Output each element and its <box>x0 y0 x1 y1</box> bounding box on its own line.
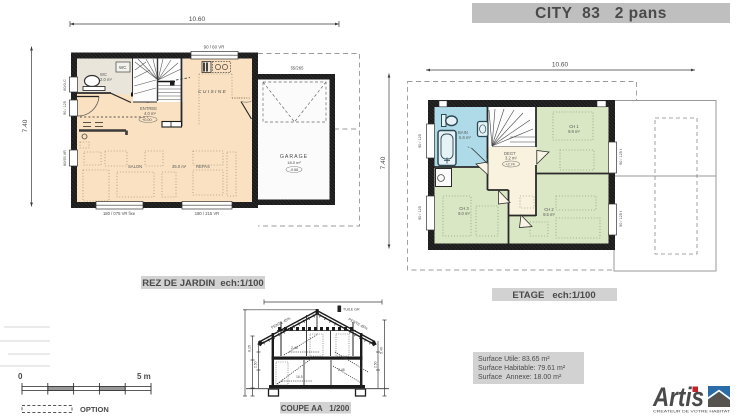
svg-text:2.50: 2.50 <box>374 361 378 368</box>
svg-text:35.0 m²: 35.0 m² <box>172 164 187 169</box>
svg-text:+0.00: +0.00 <box>142 118 152 122</box>
svg-text:7.40: 7.40 <box>22 119 29 132</box>
svg-text:9.9 m²: 9.9 m² <box>568 129 580 134</box>
svg-text:5.6 m²: 5.6 m² <box>459 135 471 140</box>
svg-text:90 / 125: 90 / 125 <box>418 206 422 220</box>
svg-text:9.0 m²: 9.0 m² <box>458 211 470 216</box>
svg-text:2.0 m²: 2.0 m² <box>100 77 112 82</box>
svg-text:18.0 m²: 18.0 m² <box>287 160 301 165</box>
svg-text:2.50: 2.50 <box>254 361 258 368</box>
svg-text:OPTION: OPTION <box>80 405 109 414</box>
svg-text:6.15: 6.15 <box>248 345 252 352</box>
svg-text:Surface Annexe: 18.00 m²: Surface Annexe: 18.00 m² <box>478 374 562 381</box>
svg-text:3.2 m²: 3.2 m² <box>505 156 517 161</box>
svg-text:10.60: 10.60 <box>552 62 569 69</box>
svg-text:16.5: 16.5 <box>296 375 303 379</box>
svg-text:ETAGE ech:1/100: ETAGE ech:1/100 <box>512 290 595 301</box>
svg-text:2.48: 2.48 <box>338 368 345 372</box>
svg-text:7.40: 7.40 <box>380 156 387 169</box>
svg-text:CUISINE: CUISINE <box>198 89 227 95</box>
svg-text:90 / 125 t: 90 / 125 t <box>619 148 623 165</box>
svg-text:10.60: 10.60 <box>189 16 206 23</box>
svg-text:0: 0 <box>18 372 23 381</box>
svg-text:90 / 125: 90 / 125 <box>63 101 67 115</box>
svg-text:90 / 125: 90 / 125 <box>418 134 422 148</box>
svg-text:SALON: SALON <box>128 164 142 169</box>
svg-text:TUILE GR: TUILE GR <box>343 308 360 312</box>
svg-text:60/0-C: 60/0-C <box>63 79 67 91</box>
svg-text:REPAS: REPAS <box>196 164 210 169</box>
svg-text:90 / 60 VR: 90 / 60 VR <box>204 45 225 50</box>
svg-text:COUPE AA 1/200: COUPE AA 1/200 <box>281 404 350 413</box>
svg-text:2.48: 2.48 <box>291 346 298 350</box>
svg-text:80/95 VR: 80/95 VR <box>63 150 67 166</box>
svg-text:180 / 075 VR fixe: 180 / 075 VR fixe <box>103 211 136 216</box>
svg-text:Surface Habitable: 79.61 m²: Surface Habitable: 79.61 m² <box>478 365 566 372</box>
svg-text:CREATEUR DE VOTRE HABITAT: CREATEUR DE VOTRE HABITAT <box>653 409 731 414</box>
svg-text:55/265: 55/265 <box>291 66 304 71</box>
svg-text:5 m: 5 m <box>137 372 151 381</box>
svg-text:Surface Utile: 83.65 m²: Surface Utile: 83.65 m² <box>478 356 550 363</box>
svg-text:+2.74: +2.74 <box>506 163 515 167</box>
svg-text:WC: WC <box>119 65 127 70</box>
svg-text:180 / 215 VR: 180 / 215 VR <box>195 211 219 216</box>
svg-text:9.5 m²: 9.5 m² <box>543 212 555 217</box>
svg-text:5.40: 5.40 <box>380 347 384 354</box>
svg-text:90 / 125 t: 90 / 125 t <box>619 210 623 227</box>
svg-text:4.0 m²: 4.0 m² <box>144 111 156 116</box>
svg-text:CITY 83 2 pans: CITY 83 2 pans <box>535 5 667 22</box>
svg-text:-0.68: -0.68 <box>290 168 298 172</box>
svg-text:REZ DE JARDIN ech:1/100: REZ DE JARDIN ech:1/100 <box>142 278 263 289</box>
